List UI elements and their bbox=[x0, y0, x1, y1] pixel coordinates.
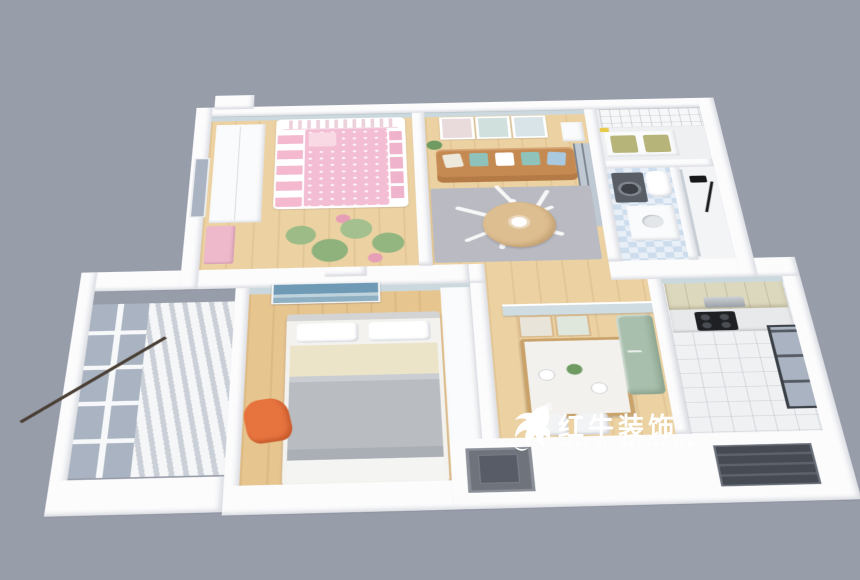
bed-headboard bbox=[287, 311, 440, 321]
console-shelf bbox=[560, 122, 585, 142]
dining-half-wall bbox=[502, 301, 653, 316]
bunk-bed-ladder bbox=[389, 131, 405, 201]
balcony-front-wall bbox=[44, 476, 224, 516]
bed-pillow bbox=[296, 322, 358, 342]
toilet bbox=[644, 171, 674, 198]
vanity bbox=[626, 205, 681, 241]
toy-box bbox=[599, 128, 609, 132]
brand-name-chinese: 红牛装饰 bbox=[558, 407, 678, 444]
lattice-cabinet bbox=[598, 107, 704, 128]
registered-mark: ® bbox=[545, 402, 552, 413]
bunk-bed bbox=[273, 117, 409, 209]
bench-cushion bbox=[610, 135, 639, 153]
shower-head bbox=[689, 176, 707, 183]
fridge-handle bbox=[627, 350, 642, 352]
entry-storage bbox=[596, 107, 712, 161]
bed-sheet-fold bbox=[286, 457, 445, 483]
floor-plan-3d bbox=[0, 88, 860, 539]
bed-gray-blanket bbox=[287, 373, 444, 460]
sofa-pillow bbox=[521, 152, 541, 166]
bunk-bed-pillow bbox=[309, 132, 337, 147]
entry-bench bbox=[604, 131, 680, 157]
hongniu-watermark: ® 红牛装饰 HONG NIU DECORATION bbox=[500, 396, 720, 462]
kids-bedroom bbox=[199, 113, 419, 270]
sofa bbox=[436, 147, 579, 183]
bunk-bed-mattress bbox=[304, 128, 390, 206]
cooktop bbox=[694, 311, 739, 331]
sofa-pillow bbox=[495, 152, 515, 166]
brand-name-english: HONG NIU DECORATION bbox=[559, 440, 696, 449]
bunk-bed-stairs bbox=[275, 130, 304, 207]
chimney-bump bbox=[214, 95, 254, 109]
table-flower-vase bbox=[564, 363, 585, 376]
bed-pillow bbox=[369, 321, 431, 341]
table-flowers bbox=[507, 215, 532, 230]
wardrobe-seam bbox=[234, 127, 241, 220]
master-bedroom bbox=[239, 283, 486, 492]
bed-cream-band bbox=[289, 342, 439, 376]
pink-dresser bbox=[203, 226, 235, 265]
wall-art-frame-1 bbox=[439, 117, 475, 140]
dining-frame-2 bbox=[554, 314, 592, 336]
cactus-rug bbox=[279, 211, 414, 266]
bedroom-front-wall bbox=[222, 480, 488, 516]
wall-art-frame-2 bbox=[475, 116, 512, 139]
scene bbox=[0, 0, 860, 534]
curtain-slats bbox=[130, 301, 235, 477]
bench-cushion bbox=[643, 135, 672, 153]
sofa-pillow bbox=[469, 153, 489, 167]
shower-pipe bbox=[705, 181, 713, 212]
kids-wardrobe bbox=[209, 124, 266, 223]
sofa-pillow bbox=[442, 153, 464, 168]
render-canvas: ® 红牛装饰 HONG NIU DECORATION bbox=[0, 0, 860, 580]
place-setting bbox=[590, 382, 609, 394]
range-hood bbox=[703, 296, 746, 307]
washing-machine bbox=[611, 172, 648, 202]
front-window-recess bbox=[713, 443, 822, 486]
sofa-pillow bbox=[547, 152, 566, 166]
bull-logo-icon bbox=[506, 402, 550, 456]
vanity-basin bbox=[641, 215, 665, 229]
seascape-art bbox=[271, 281, 380, 304]
dining-frame-1 bbox=[517, 315, 554, 337]
balcony bbox=[130, 301, 235, 477]
wall-segment bbox=[468, 264, 485, 283]
wall-art-frame-3 bbox=[511, 115, 548, 138]
place-setting bbox=[538, 369, 556, 381]
double-bed bbox=[282, 311, 450, 486]
living-room bbox=[424, 109, 608, 264]
